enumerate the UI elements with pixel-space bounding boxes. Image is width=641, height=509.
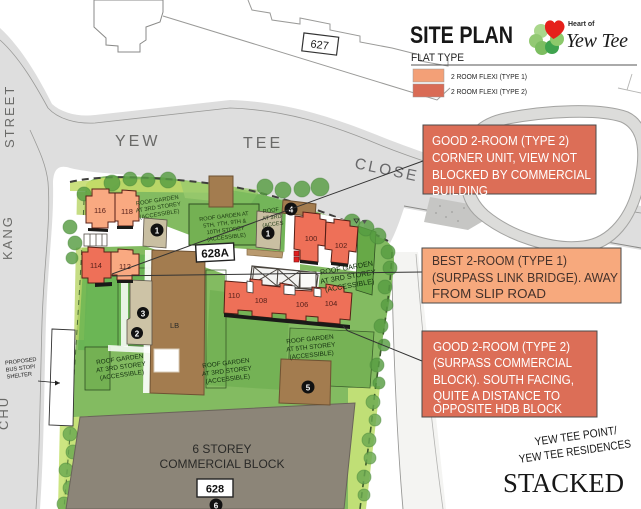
svg-text:TEE: TEE <box>243 135 283 152</box>
svg-text:BLOCKED BY COMMERCIAL: BLOCKED BY COMMERCIAL <box>432 168 591 182</box>
svg-text:SITE PLAN: SITE PLAN <box>410 22 513 49</box>
svg-text:BUILDING: BUILDING <box>432 184 488 198</box>
svg-text:2: 2 <box>135 330 140 339</box>
svg-text:CHU: CHU <box>0 396 11 430</box>
svg-text:OPPOSITE HDB BLOCK: OPPOSITE HDB BLOCK <box>433 402 563 416</box>
svg-text:628: 628 <box>206 484 224 496</box>
svg-text:Yew Tee: Yew Tee <box>566 30 628 52</box>
svg-text:STACKED: STACKED <box>503 468 624 498</box>
svg-text:(SURPASS COMMERCIAL: (SURPASS COMMERCIAL <box>433 356 572 370</box>
svg-text:BEST 2-ROOM (TYPE 1): BEST 2-ROOM (TYPE 1) <box>432 254 567 268</box>
svg-text:2 ROOM FLEXI (TYPE 1): 2 ROOM FLEXI (TYPE 1) <box>451 72 527 81</box>
svg-text:FLAT TYPE: FLAT TYPE <box>411 52 464 64</box>
svg-text:QUITE A DISTANCE TO: QUITE A DISTANCE TO <box>433 389 560 403</box>
svg-text:102: 102 <box>335 241 348 250</box>
svg-text:5: 5 <box>306 384 311 393</box>
svg-text:100: 100 <box>305 234 318 243</box>
svg-text:627: 627 <box>310 38 330 52</box>
svg-text:COMMERCIAL BLOCK: COMMERCIAL BLOCK <box>160 457 285 471</box>
svg-text:106: 106 <box>296 300 309 309</box>
svg-text:6: 6 <box>214 502 219 509</box>
svg-text:FROM SLIP ROAD: FROM SLIP ROAD <box>432 287 546 301</box>
svg-text:108: 108 <box>255 296 268 305</box>
svg-text:116: 116 <box>94 206 106 215</box>
svg-text:STREET: STREET <box>2 85 17 148</box>
svg-text:114: 114 <box>90 261 102 270</box>
svg-text:6 STOREY: 6 STOREY <box>192 442 251 456</box>
svg-text:(SURPASS LINK BRIDGE). AWAY: (SURPASS LINK BRIDGE). AWAY <box>432 271 619 285</box>
svg-text:110: 110 <box>228 291 240 300</box>
svg-text:104: 104 <box>325 299 338 308</box>
svg-text:1: 1 <box>266 230 271 239</box>
svg-text:GOOD 2-ROOM (TYPE 2): GOOD 2-ROOM (TYPE 2) <box>433 340 570 354</box>
svg-text:GOOD 2-ROOM (TYPE 2): GOOD 2-ROOM (TYPE 2) <box>432 134 569 148</box>
svg-text:YEW: YEW <box>115 133 160 150</box>
svg-text:Heart of: Heart of <box>568 21 595 28</box>
svg-text:3: 3 <box>141 310 146 319</box>
svg-text:118: 118 <box>121 207 133 216</box>
svg-text:KANG: KANG <box>0 215 15 260</box>
svg-text:628A: 628A <box>201 247 229 260</box>
svg-text:LB: LB <box>170 321 179 330</box>
svg-text:CORNER UNIT, VIEW NOT: CORNER UNIT, VIEW NOT <box>432 151 577 165</box>
svg-text:2 ROOM FLEXI (TYPE 2): 2 ROOM FLEXI (TYPE 2) <box>451 87 527 96</box>
svg-text:BLOCK). SOUTH FACING,: BLOCK). SOUTH FACING, <box>433 373 574 387</box>
svg-text:1: 1 <box>155 227 160 236</box>
